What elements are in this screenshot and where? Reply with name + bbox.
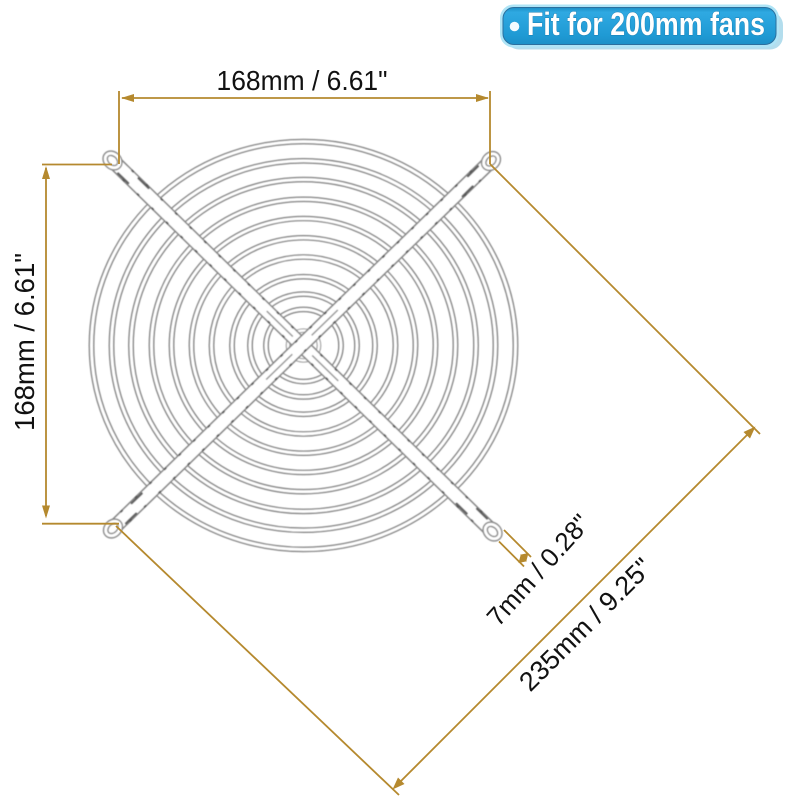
svg-text:Fit for 200mm fans: Fit for 200mm fans xyxy=(527,6,765,42)
svg-text:168mm / 6.61": 168mm / 6.61" xyxy=(217,65,388,96)
svg-text:168mm / 6.61": 168mm / 6.61" xyxy=(9,253,40,431)
